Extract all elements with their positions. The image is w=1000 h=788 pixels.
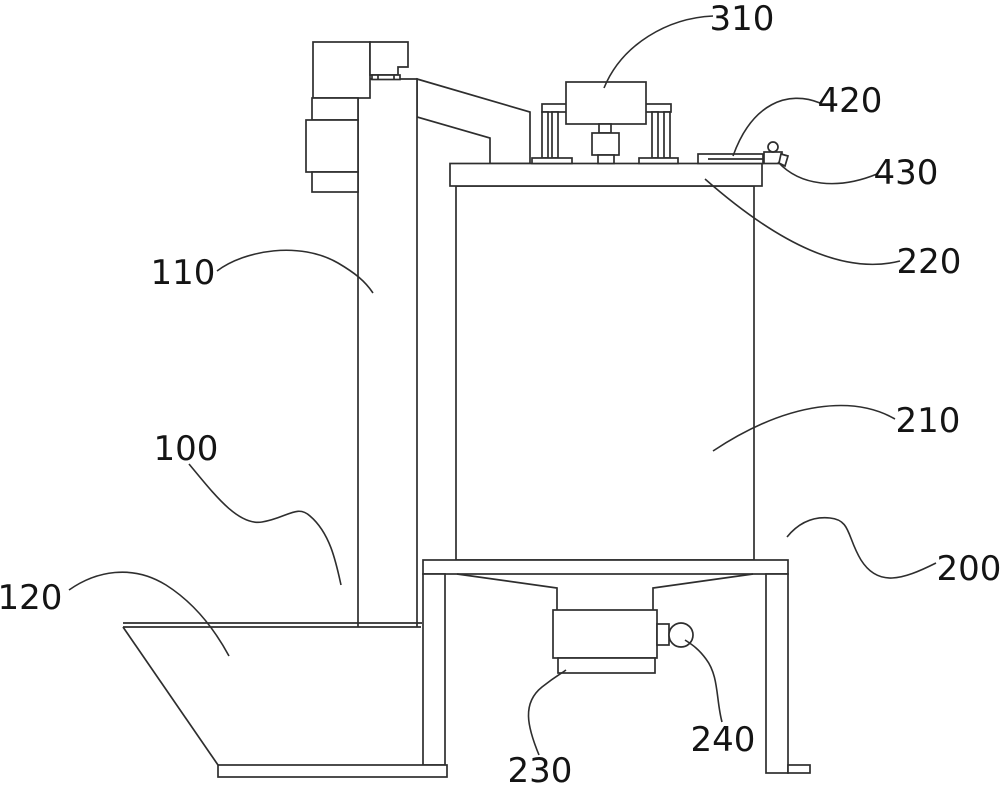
feed-chute xyxy=(417,79,530,164)
tank-lid-220 xyxy=(450,164,762,187)
leader-200 xyxy=(787,518,936,578)
tank-body-210 xyxy=(456,186,754,560)
frame-left-leg xyxy=(423,574,445,765)
patent-diagram: 310 420 430 220 110 210 100 120 200 230 … xyxy=(0,0,1000,788)
side-motor-upper-block xyxy=(312,98,358,120)
label-210: 210 xyxy=(896,401,961,441)
label-110: 110 xyxy=(151,253,216,293)
label-100: 100 xyxy=(154,429,219,469)
frame-right-foot xyxy=(788,765,810,773)
label-220: 220 xyxy=(897,242,962,282)
stirrer-shaft-upper xyxy=(599,124,611,133)
hopper-bottom-plate xyxy=(218,765,447,777)
leader-100 xyxy=(189,464,341,585)
label-420: 420 xyxy=(818,81,883,121)
bracket-leg-2 xyxy=(552,112,558,158)
hopper-slanted-wall xyxy=(123,627,218,765)
bracket-leg-1 xyxy=(542,112,548,158)
valve-connector xyxy=(657,624,669,645)
bracket-leg-3 xyxy=(652,112,658,158)
label-430: 430 xyxy=(874,153,939,193)
stirrer-motor-310 xyxy=(566,82,646,124)
label-200: 200 xyxy=(937,549,1000,589)
column-top-box-left xyxy=(313,42,370,98)
stirrer-shaft-lower xyxy=(598,155,614,164)
bracket-foot-pad-left xyxy=(532,158,572,164)
valve-knob xyxy=(768,142,778,152)
label-310: 310 xyxy=(710,0,775,39)
shaft-coupling xyxy=(592,133,619,155)
leader-430 xyxy=(778,162,877,184)
side-motor-lower-block xyxy=(312,172,358,192)
leader-240 xyxy=(685,640,722,722)
leader-310 xyxy=(604,16,713,88)
frame-right-leg xyxy=(766,574,788,773)
elevator-column-110 xyxy=(358,79,417,627)
label-120: 120 xyxy=(0,578,62,618)
column-top-flange xyxy=(372,75,400,80)
discharge-unit-base xyxy=(558,658,655,673)
leader-110 xyxy=(217,250,373,293)
frame-top-plate xyxy=(423,560,788,574)
label-230: 230 xyxy=(508,751,573,788)
funnel-left-wall xyxy=(457,574,557,610)
bracket-leg-4 xyxy=(664,112,670,158)
column-top-box-right xyxy=(370,42,408,75)
figure-canvas: 310 420 430 220 110 210 100 120 200 230 … xyxy=(0,0,1000,788)
leader-230 xyxy=(528,670,566,755)
discharge-unit-230 xyxy=(553,610,657,658)
funnel-right-wall xyxy=(653,574,753,610)
side-motor-main-block xyxy=(306,120,358,172)
bracket-foot-pad-right xyxy=(639,158,678,164)
leader-120 xyxy=(69,572,229,656)
label-240: 240 xyxy=(691,720,756,760)
